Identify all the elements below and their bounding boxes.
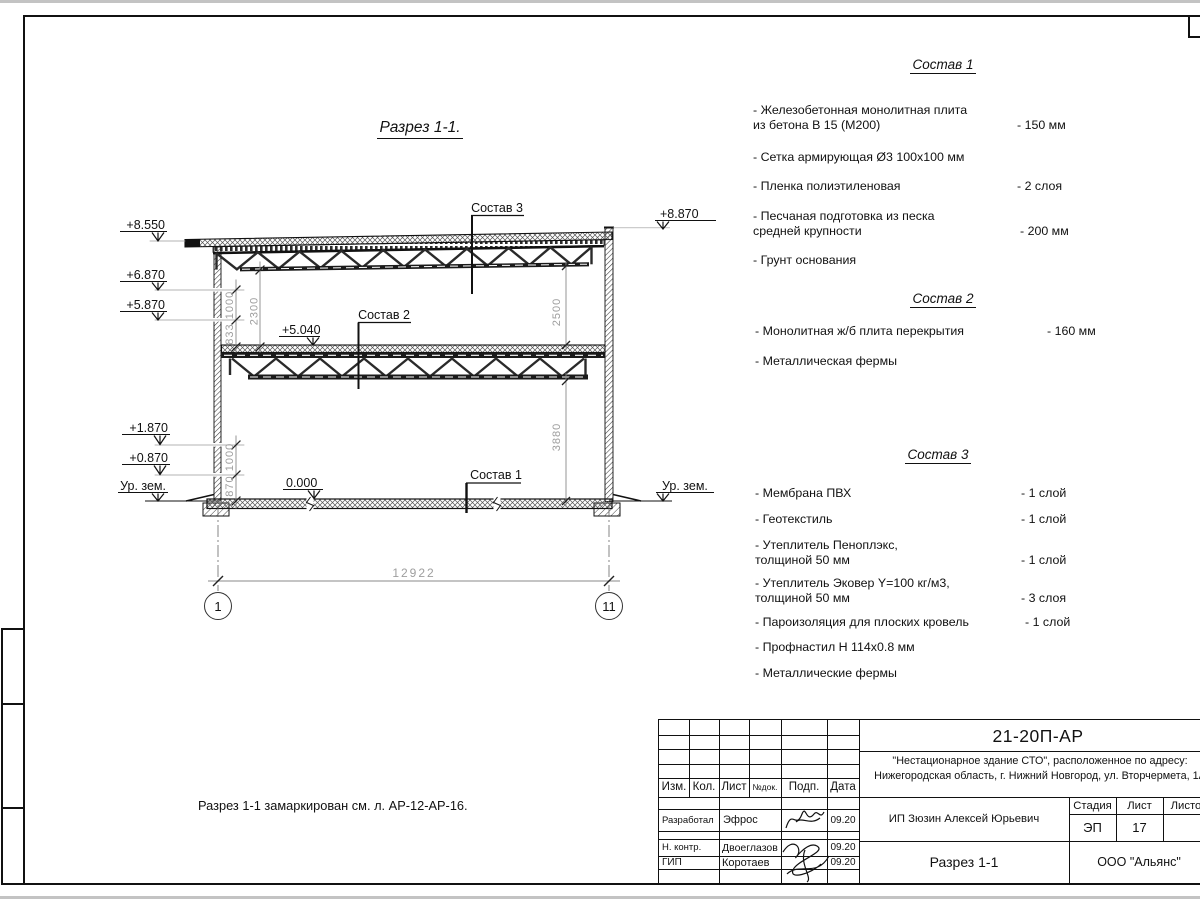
roof <box>185 232 612 271</box>
dim-1000-lower: 1000 <box>224 443 236 471</box>
list-item: - Утеплитель Пеноплэкс, толщиной 50 мм -… <box>755 538 1135 568</box>
drawing-sheet: { "drawing": { "title": "Разрез 1-1.", "… <box>0 0 1200 900</box>
stamp-role: Н. контр. <box>660 839 720 856</box>
list-item: - Монолитная ж/б плита перекрытия - 160 … <box>755 324 1135 339</box>
signature <box>782 804 827 834</box>
stamp-col-kol: Кол. <box>689 778 719 796</box>
list-item: - Утеплитель Эковер Y=100 кг/м3, толщино… <box>755 576 1135 606</box>
stamp-date: 09.20 <box>827 809 859 831</box>
axis-label-11: 11 <box>602 599 616 614</box>
svg-text:+5.870: +5.870 <box>126 298 165 312</box>
stamp-col-izm: Изм. <box>659 778 689 796</box>
company-name: ООО "Альянс" <box>1069 841 1200 883</box>
stamp-name: Двоеглазов <box>720 839 783 856</box>
list-item: - Пароизоляция для плоских кровель - 1 с… <box>755 615 1135 630</box>
axes-and-span-dim: 12922 1 11 <box>205 505 623 620</box>
composition-block-3: Состав 3 - Мембрана ПВХ - 1 слой - Геоте… <box>748 447 1128 687</box>
right-dimensions: 2500 3880 <box>551 262 570 507</box>
callout-sostav1: Состав 1 <box>470 468 522 482</box>
list-item: - Пленка полиэтиленовая - 2 слоя <box>753 179 1133 194</box>
svg-text:Ур. зем.: Ур. зем. <box>662 479 708 493</box>
svg-text:+0.870: +0.870 <box>129 451 168 465</box>
stamp-col-list: Лист <box>719 778 749 796</box>
svg-text:+8.550: +8.550 <box>126 218 165 232</box>
callout-sostav2: Состав 2 <box>358 308 410 322</box>
stamp-col-data: Дата <box>827 778 859 796</box>
svg-text:+6.870: +6.870 <box>126 268 165 282</box>
dim-833: 833 <box>224 323 236 344</box>
drawing-note: Разрез 1-1 замаркирован см. л. АР-12-АР-… <box>198 798 468 813</box>
level-5040: +5.040 <box>282 323 321 337</box>
doc-number: 21-20П-АР <box>864 722 1200 750</box>
list-item: - Геотекстиль - 1 слой <box>755 512 1135 527</box>
list-item: - Мембрана ПВХ - 1 слой <box>755 486 1135 501</box>
dim-3880: 3880 <box>551 423 563 451</box>
svg-text:+8.870: +8.870 <box>660 207 699 221</box>
list-item: - Сетка армирующая Ø3 100х100 мм <box>753 150 1133 165</box>
list-item: - Грунт основания <box>753 253 1133 268</box>
composition-block-2: Состав 2 - Монолитная ж/б плита перекрыт… <box>753 291 1133 381</box>
stamp-name: Коротаев <box>720 856 783 869</box>
sheet-value: 17 <box>1116 814 1163 840</box>
stamp-col-ndok: №док. <box>749 778 781 796</box>
composition-block-1: Состав 1 - Железобетонная монолитная пли… <box>753 57 1133 272</box>
svg-text:+1.870: +1.870 <box>129 421 168 435</box>
list-item: - Металлическая фермы <box>755 354 1135 369</box>
dim-span: 12922 <box>392 566 435 580</box>
stamp-role: ГИП <box>660 856 720 869</box>
floor-slab <box>207 497 612 511</box>
list-item: - Металлические фермы <box>755 666 1135 681</box>
list-item: - Песчаная подготовка из песка средней к… <box>753 209 1133 239</box>
left-dimensions: 1000 833 2300 1000 870 <box>150 241 264 508</box>
stage-value: ЭП <box>1069 814 1116 840</box>
list-item: - Железобетонная монолитная плита из бет… <box>753 103 1133 133</box>
sheets-label: Листов <box>1163 797 1200 814</box>
list-item: - Профнастил Н 114х0.8 мм <box>755 640 1135 655</box>
dim-2500: 2500 <box>551 298 563 326</box>
title-block: Изм. Кол. Лист №док. Подп. Дата Разработ… <box>658 719 1200 885</box>
composition-1-title: Состав 1 <box>753 57 1133 72</box>
level-0000: 0.000 <box>286 476 317 490</box>
dim-2300: 2300 <box>249 297 261 325</box>
axis-label-1: 1 <box>214 599 221 614</box>
stamp-role: Разработал <box>660 809 720 831</box>
dim-870: 870 <box>224 475 236 496</box>
project-description: "Нестационарное здание СТО", расположенн… <box>864 754 1200 784</box>
middle-floor <box>222 345 606 380</box>
elevation-marks-right: +8.870 Ур. зем. <box>613 207 716 501</box>
middle-truss-web <box>232 359 584 377</box>
stage-label: Стадия <box>1069 797 1116 814</box>
client-name: ИП Зюзин Алексей Юрьевич <box>859 797 1069 841</box>
sheet-label: Лист <box>1116 797 1163 814</box>
stamp-col-podp: Подп. <box>781 778 827 796</box>
dim-1000-upper: 1000 <box>224 291 236 319</box>
composition-2-title: Состав 2 <box>753 291 1133 306</box>
elevation-marks-left: +8.550 +6.870 +5.870 +1.870 +0.870 Ур. з… <box>118 218 170 501</box>
svg-text:Ур. зем.: Ур. зем. <box>120 479 166 493</box>
sheet-title: Разрез 1-1 <box>859 841 1069 883</box>
stamp-name: Эфрос <box>720 809 783 831</box>
signature <box>777 834 833 884</box>
callout-sostav3: Состав 3 <box>471 201 523 215</box>
composition-3-title: Состав 3 <box>748 447 1128 462</box>
